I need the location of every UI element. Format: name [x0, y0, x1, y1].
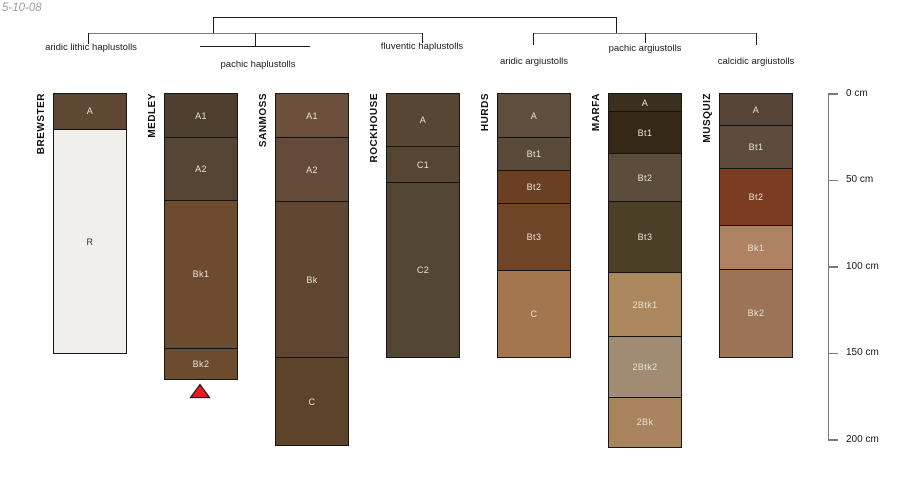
horizon-label: A: [753, 105, 759, 115]
horizon-hurds-bt1: Bt1: [498, 137, 570, 170]
horizon-label: A1: [306, 111, 318, 121]
horizon-label: Bt1: [638, 128, 653, 138]
horizon-marfa-a: A: [609, 94, 681, 111]
horizon-label: A1: [195, 111, 207, 121]
horizon-musquiz-bk2: Bk2: [720, 269, 792, 357]
profile-column-hurds: ABt1Bt2Bt3C: [497, 93, 571, 358]
horizon-hurds-c: C: [498, 270, 570, 357]
depth-tick-label: 200 cm: [846, 434, 879, 445]
date-label: 5-10-08: [2, 2, 42, 14]
depth-tick-label: 50 cm: [846, 174, 873, 185]
tree-connector-line: [645, 33, 646, 43]
horizon-label: C: [309, 397, 316, 407]
horizon-musquiz-a: A: [720, 94, 792, 125]
horizon-label: A: [87, 106, 93, 116]
profile-column-medley: A1A2Bk1Bk2: [164, 93, 238, 380]
horizon-rockhouse-c2: C2: [387, 182, 459, 357]
soil-profile-figure: 5-10-08 aridic lithic haplustolls pachic…: [0, 0, 900, 500]
horizon-hurds-bt3: Bt3: [498, 203, 570, 270]
horizon-label: 2Btk2: [632, 362, 657, 372]
series-label-rockhouse: ROCKHOUSE: [369, 93, 380, 163]
depth-tick-label: 0 cm: [846, 88, 868, 99]
horizon-label: Bt2: [749, 192, 764, 202]
horizon-musquiz-bk1: Bk1: [720, 225, 792, 268]
horizon-label: Bk1: [193, 269, 210, 279]
horizon-label: Bk1: [748, 243, 765, 253]
horizon-label: A: [642, 98, 648, 108]
horizon-label: R: [87, 237, 94, 247]
tree-connector-line: [616, 17, 617, 33]
horizon-label: Bk2: [748, 308, 765, 318]
horizon-marfa-2bk: 2Bk: [609, 397, 681, 447]
series-label-sanmoss: SANMOSS: [258, 93, 269, 147]
tree-connector-line: [213, 17, 214, 33]
depth-tick-label: 100 cm: [846, 261, 879, 272]
tree-label-fluventic-haplustolls: fluventic haplustolls: [381, 41, 463, 52]
horizon-label: Bk: [306, 275, 317, 285]
depth-tick: [828, 439, 838, 440]
horizon-sanmoss-a2: A2: [276, 137, 348, 201]
horizon-musquiz-bt1: Bt1: [720, 125, 792, 168]
horizon-label: Bt3: [638, 232, 653, 242]
horizon-label: A2: [195, 164, 207, 174]
horizon-label: 2Btk1: [632, 300, 657, 310]
horizon-hurds-bt2: Bt2: [498, 170, 570, 203]
tree-label-aridic-argiustolls: aridic argiustolls: [500, 56, 568, 67]
horizon-label: Bt1: [527, 149, 542, 159]
profile-column-brewster: AR: [53, 93, 127, 354]
tree-label-pachic-haplustolls: pachic haplustolls: [221, 59, 296, 70]
tree-connector-line: [255, 33, 256, 46]
horizon-label: Bk2: [193, 359, 210, 369]
horizon-marfa-2btk2: 2Btk2: [609, 336, 681, 397]
series-label-marfa: MARFA: [591, 93, 602, 131]
horizon-label: A: [531, 111, 537, 121]
horizon-label: Bt1: [749, 142, 764, 152]
horizon-medley-a2: A2: [165, 137, 237, 199]
depth-tick: [828, 93, 838, 94]
horizon-marfa-2btk1: 2Btk1: [609, 272, 681, 336]
profile-column-sanmoss: A1A2BkC: [275, 93, 349, 446]
depth-tick: [828, 180, 838, 181]
profile-column-rockhouse: AC1C2: [386, 93, 460, 358]
tree-label-aridic-lithic-haplustolls: aridic lithic haplustolls: [45, 42, 137, 53]
horizon-sanmoss-bk: Bk: [276, 201, 348, 357]
horizon-label: C: [531, 309, 538, 319]
series-label-brewster: BREWSTER: [36, 93, 47, 154]
series-label-musquiz: MUSQUIZ: [702, 93, 713, 143]
series-label-medley: MEDLEY: [147, 93, 158, 138]
tree-connector-line: [200, 46, 310, 47]
horizon-marfa-bt3: Bt3: [609, 201, 681, 272]
tree-connector-line: [756, 33, 757, 45]
horizon-medley-bk1: Bk1: [165, 200, 237, 349]
horizon-sanmoss-c: C: [276, 357, 348, 445]
series-label-hurds: HURDS: [480, 93, 491, 131]
horizon-label: Bt2: [527, 182, 542, 192]
horizon-label: Bt2: [638, 173, 653, 183]
horizon-rockhouse-c1: C1: [387, 146, 459, 182]
depth-tick: [828, 353, 838, 354]
tree-label-calcidic-argiustolls: calcidic argiustolls: [718, 56, 795, 67]
horizon-label: A: [420, 115, 426, 125]
depth-tick: [828, 266, 838, 267]
horizon-marfa-bt1: Bt1: [609, 111, 681, 153]
depth-tick-label: 150 cm: [846, 347, 879, 358]
horizon-brewster-a: A: [54, 94, 126, 129]
horizon-hurds-a: A: [498, 94, 570, 137]
horizon-label: C1: [417, 160, 429, 170]
horizon-marfa-bt2: Bt2: [609, 153, 681, 201]
horizon-medley-a1: A1: [165, 94, 237, 137]
horizon-musquiz-bt2: Bt2: [720, 168, 792, 225]
continues-deeper-triangle-icon: [189, 383, 211, 404]
tree-connector-line: [533, 33, 534, 45]
horizon-label: Bt3: [527, 232, 542, 242]
tree-label-pachic-argiustolls: pachic argiustolls: [609, 43, 682, 54]
tree-connector-line: [213, 17, 617, 18]
horizon-label: 2Bk: [637, 417, 654, 427]
horizon-label: A2: [306, 165, 318, 175]
profile-column-musquiz: ABt1Bt2Bk1Bk2: [719, 93, 793, 358]
horizon-sanmoss-a1: A1: [276, 94, 348, 137]
horizon-rockhouse-a: A: [387, 94, 459, 146]
profile-column-marfa: ABt1Bt2Bt32Btk12Btk22Bk: [608, 93, 682, 448]
horizon-label: C2: [417, 265, 429, 275]
horizon-brewster-r: R: [54, 129, 126, 354]
horizon-medley-bk2: Bk2: [165, 348, 237, 379]
